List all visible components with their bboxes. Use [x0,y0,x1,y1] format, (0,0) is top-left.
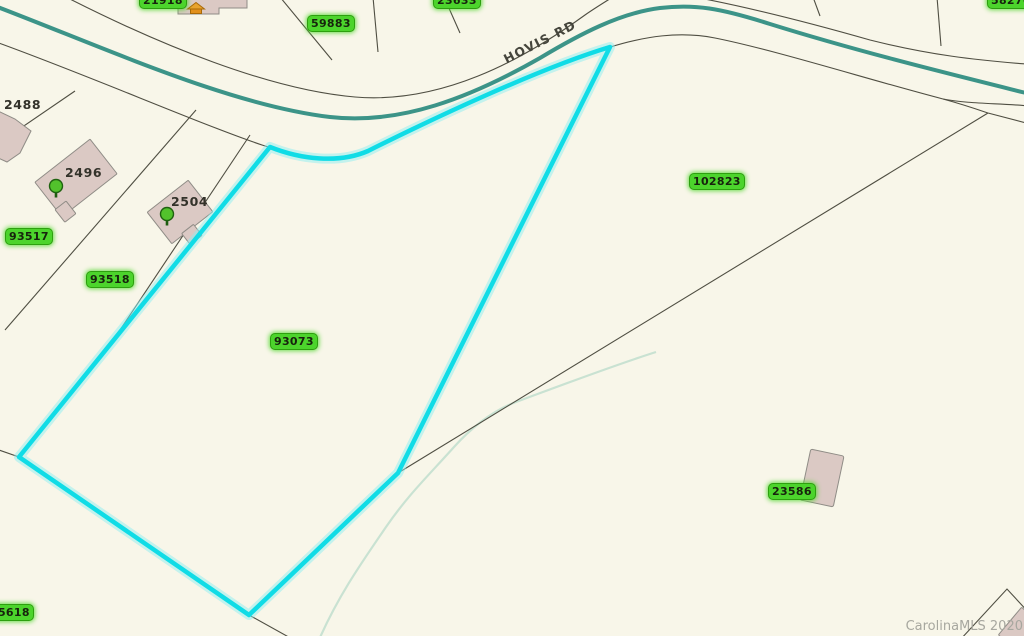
parcel-boundaries [0,0,1024,636]
boundary-line [373,0,378,52]
parcel-id-badge: 93517 [6,229,52,244]
parcel-id-badge: 95618 [0,605,33,620]
highlight-core [19,47,610,615]
parcel-id-badge: 93073 [271,334,317,349]
parcel-id-badge: 21918 [140,0,186,8]
road-north-edge [64,0,1024,98]
street-number-label: 2504 [171,194,208,209]
building-footprint [0,110,31,162]
street-number-label: 2496 [65,165,102,180]
boundary-line [249,615,294,636]
parcel-id-badge: 59883 [308,16,354,31]
boundary-line [813,0,820,16]
parcel-id-badge: 93518 [87,272,133,287]
mls-parcel-map: 21918 23633 58276 59883 102823 93073 935… [0,0,1024,636]
parcel-id-badge: 23586 [769,484,815,499]
creek-line [318,352,656,636]
highlighted-parcel-outline [19,47,610,615]
map-canvas [0,0,1024,636]
parcel-id-badge: 102823 [690,174,744,189]
building-footprint [178,0,247,14]
street-number-label: 2488 [4,97,41,112]
watermark-text: CarolinaMLS 2020 [906,619,1023,634]
highlight-halo [19,47,610,615]
building-footprint [34,139,121,222]
buildings [0,0,1024,636]
parcel-id-badge: 58276 [988,0,1024,8]
boundary-line [937,0,941,46]
parcel-id-badge: 23633 [434,0,480,8]
